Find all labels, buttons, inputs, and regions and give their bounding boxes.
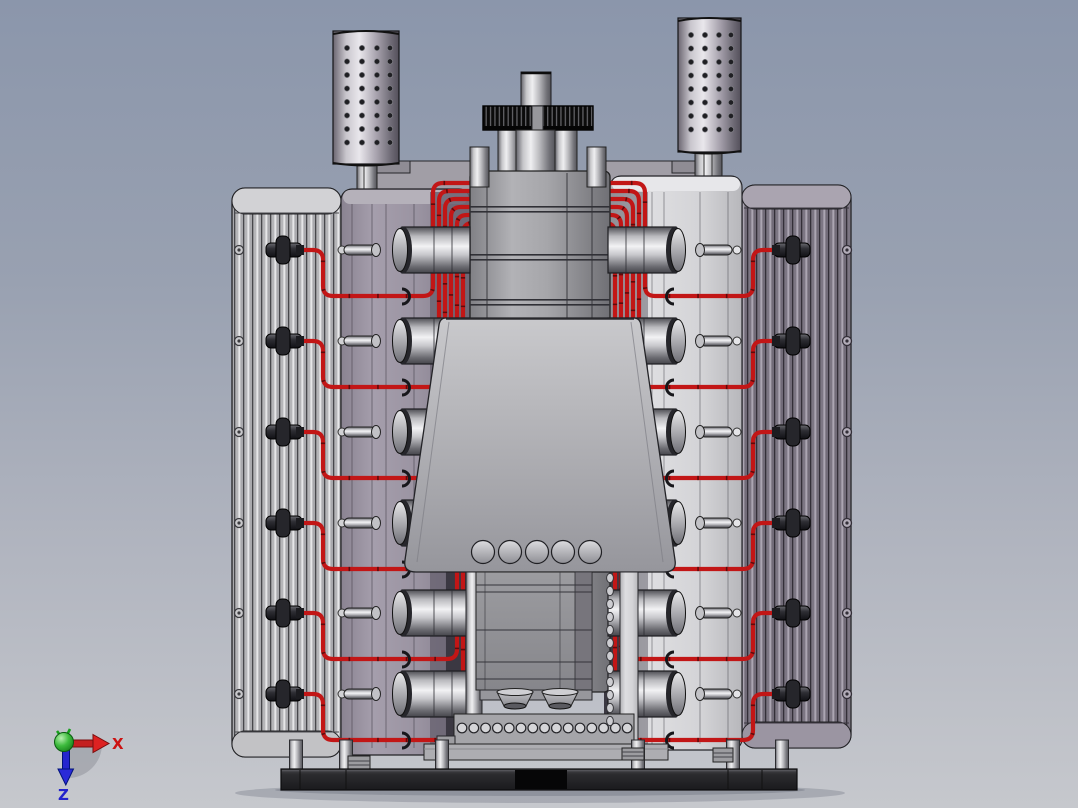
base-center-block xyxy=(515,770,567,789)
cylinder-fin-block-right[interactable] xyxy=(742,185,852,748)
x-axis-label: X xyxy=(112,735,124,753)
crankcase-hole-strip xyxy=(457,723,632,733)
front-cover-bumps xyxy=(472,541,602,564)
base-plate[interactable] xyxy=(281,769,797,790)
cad-viewport-stage: X Z xyxy=(0,0,1078,808)
origin-ball xyxy=(55,733,74,752)
cad-viewport[interactable]: X Z xyxy=(0,0,1078,808)
front-cover[interactable] xyxy=(405,318,676,572)
z-axis-label: Z xyxy=(58,786,69,804)
